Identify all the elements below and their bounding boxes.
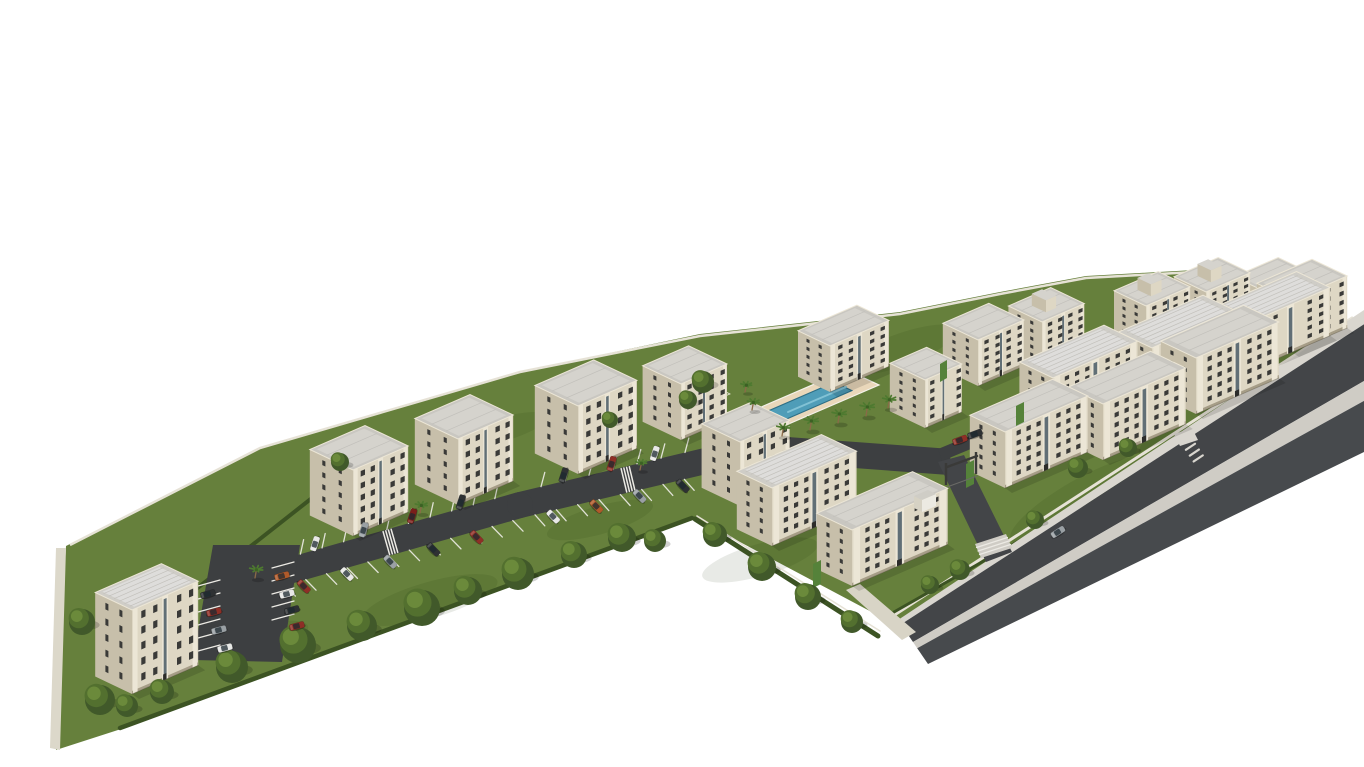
corner-pilaster — [979, 338, 982, 385]
palm-shadow — [252, 578, 264, 582]
palm-shadow — [885, 408, 897, 412]
tree-highlight — [843, 612, 853, 622]
internal-road-joint — [507, 492, 533, 518]
stair-glazing — [1236, 342, 1240, 397]
palm-crown — [866, 405, 869, 408]
stair-glazing — [1045, 416, 1049, 471]
stair-glazing — [943, 375, 945, 421]
corner-pilaster — [773, 485, 779, 546]
tree-highlight — [1120, 440, 1128, 448]
corner-pilaster — [193, 582, 198, 668]
tree-highlight — [563, 543, 575, 555]
tree-highlight — [152, 681, 163, 692]
stair-glazing — [164, 598, 167, 680]
site-plan-svg — [0, 0, 1364, 767]
corner-pilaster — [1006, 429, 1012, 488]
tree-highlight — [87, 687, 101, 701]
palm-crown — [888, 398, 891, 401]
palm-crown — [752, 401, 755, 404]
tree-highlight — [1027, 512, 1035, 520]
tree-highlight — [705, 524, 716, 535]
stair-glazing — [898, 511, 902, 566]
green-gable-wall — [1016, 402, 1024, 426]
green-gable-wall — [813, 560, 821, 588]
palm-shadow — [418, 513, 429, 517]
palm-shadow — [750, 410, 761, 414]
palm-shadow — [638, 470, 648, 474]
window — [105, 603, 108, 611]
tree-highlight — [610, 525, 623, 538]
palm-crown — [745, 384, 748, 387]
palm-shadow — [862, 416, 875, 421]
palm-shadow — [806, 430, 819, 435]
tree-highlight — [504, 560, 518, 574]
tree-highlight — [922, 577, 930, 585]
corner-pilaster — [133, 608, 138, 694]
corner-pilaster — [1197, 355, 1203, 414]
architectural-render-image — [0, 0, 1364, 767]
corner-pilaster — [1323, 288, 1329, 338]
tree-highlight — [407, 592, 423, 608]
corner-pilaster — [853, 527, 860, 586]
tree-highlight — [680, 392, 688, 400]
palm-crown — [420, 504, 423, 507]
tree-highlight — [71, 610, 83, 622]
window — [105, 618, 108, 626]
corner-pilaster — [354, 468, 358, 536]
tree-highlight — [456, 578, 469, 591]
corner-pilaster — [926, 379, 929, 428]
tree-highlight — [750, 554, 763, 567]
tree-highlight — [694, 372, 704, 382]
corner-pilaster — [1179, 369, 1185, 428]
window — [105, 665, 108, 673]
corner-pilaster — [940, 489, 947, 548]
tree-highlight — [218, 653, 232, 667]
corner-pilaster — [1272, 323, 1278, 382]
palm-crown — [810, 419, 813, 422]
palm-crown — [838, 412, 841, 415]
tree-highlight — [1070, 459, 1079, 468]
corner-pilaster — [1104, 401, 1110, 460]
tree-highlight — [797, 585, 809, 597]
tree-highlight — [118, 696, 128, 706]
palm-shadow — [743, 392, 753, 396]
window — [105, 650, 108, 658]
window — [105, 634, 108, 642]
stair-glazing — [1143, 388, 1147, 443]
tree-highlight — [952, 561, 961, 570]
green-gable-wall — [966, 460, 974, 488]
corner-pilaster — [1081, 397, 1087, 456]
palm-shadow — [779, 436, 791, 440]
palm-shadow — [834, 423, 847, 428]
tree-highlight — [349, 613, 363, 627]
corner-pilaster — [831, 344, 835, 392]
stair-glazing — [606, 396, 609, 462]
stair-glazing — [813, 472, 817, 529]
tree-highlight — [283, 629, 299, 645]
corner-pilaster — [579, 404, 583, 474]
palm-crown — [782, 426, 785, 429]
stair-glazing — [484, 430, 486, 494]
palm-crown — [640, 462, 643, 465]
stair-glazing — [379, 461, 381, 525]
tree-highlight — [332, 454, 340, 462]
palm-crown — [255, 568, 258, 571]
tree-highlight — [646, 531, 656, 541]
tree-highlight — [603, 413, 610, 420]
